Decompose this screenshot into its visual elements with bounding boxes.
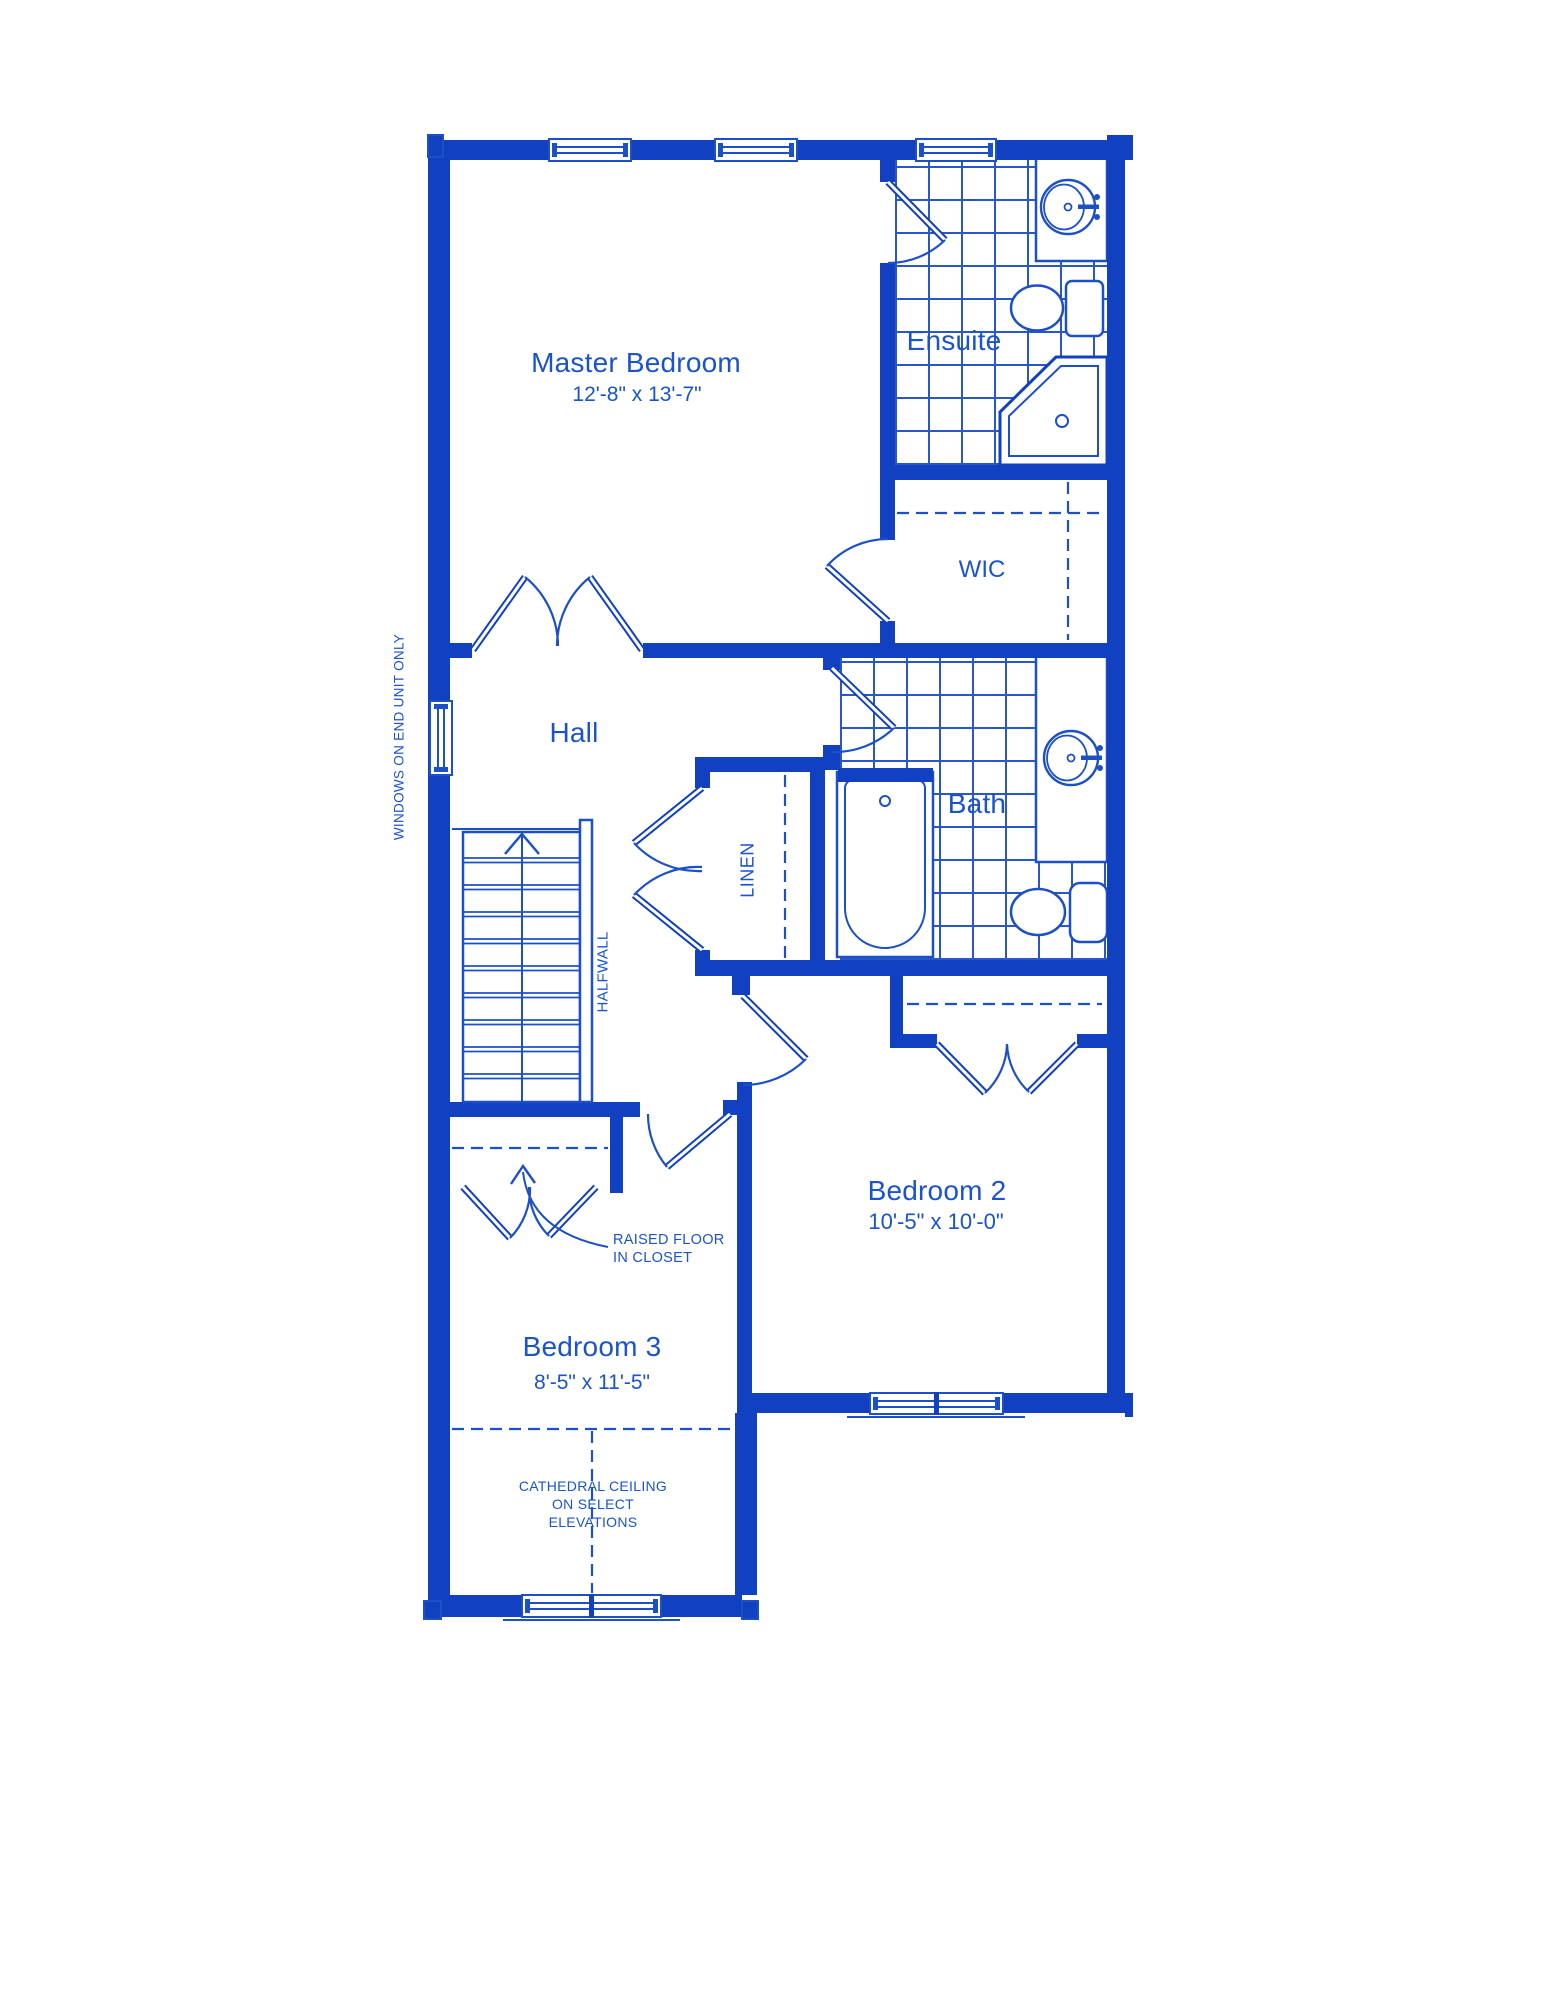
annotation-cathedral-line2: ON SELECT [519,1495,667,1513]
symbols-layer [0,0,1546,2000]
room-label-linen: LINEN [738,842,759,898]
annotation-cathedral-ceiling: CATHEDRAL CEILING ON SELECT ELEVATIONS [519,1477,667,1531]
annotation-raised-floor-line1: RAISED FLOOR [613,1231,725,1249]
annotation-cathedral-line1: CATHEDRAL CEILING [519,1477,667,1495]
annotation-windows-end-unit: WINDOWS ON END UNIT ONLY [392,634,407,840]
floor-plan: Master Bedroom 12'-8" x 13'-7" Ensuite W… [0,0,1546,2000]
room-dimensions-bedroom-3: 8'-5" x 11'-5" [534,1371,650,1395]
raised-floor-leader-arrow [511,1166,608,1247]
annotation-cathedral-line3: ELEVATIONS [519,1513,667,1531]
annotation-raised-floor: RAISED FLOOR IN CLOSET [613,1231,725,1267]
room-label-bedroom-3: Bedroom 3 [523,1331,662,1363]
annotation-raised-floor-line2: IN CLOSET [613,1249,725,1267]
room-label-ensuite: Ensuite [907,325,1002,357]
annotation-halfwall: HALFWALL [595,931,612,1012]
room-label-bath: Bath [948,788,1006,820]
room-dimensions-master-bedroom: 12'-8" x 13'-7" [572,383,701,407]
room-dimensions-bedroom-2: 10'-5" x 10'-0" [868,1209,1003,1235]
room-label-master-bedroom: Master Bedroom [531,347,741,379]
staircase [452,820,592,1102]
room-label-bedroom-2: Bedroom 2 [868,1175,1007,1207]
room-label-wic: WIC [959,556,1006,584]
halfwall-shape [580,820,592,1102]
room-label-hall: Hall [549,717,598,749]
